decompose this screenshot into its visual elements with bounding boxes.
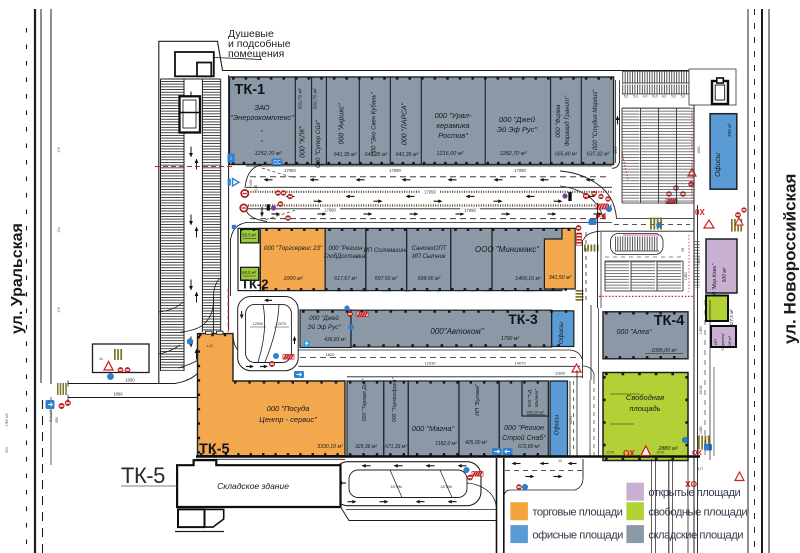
svg-text:11В30: 11В30 <box>555 372 565 376</box>
svg-text:5,0: 5,0 <box>624 95 629 99</box>
svg-text:складские площади: складские площади <box>648 529 743 541</box>
svg-text:12070: 12070 <box>276 322 287 326</box>
svg-text:672,80 м²: 672,80 м² <box>518 444 540 450</box>
svg-text:439,83 м²: 439,83 м² <box>324 337 346 343</box>
svg-text:ТК-4: ТК-4 <box>654 313 685 329</box>
svg-text:12П5М: 12П5М <box>390 485 402 489</box>
svg-text:5,1к,1Л: 5,1к,1Л <box>49 410 53 421</box>
svg-text:4,0: 4,0 <box>662 95 667 99</box>
svg-text:т0,0: т0,0 <box>651 95 657 99</box>
svg-text:Центр - сервис": Центр - сервис" <box>259 415 317 424</box>
svg-text:5,0: 5,0 <box>671 95 676 99</box>
svg-text:665,40 м²: 665,40 м² <box>555 152 577 158</box>
svg-text:1700 м²: 1700 м² <box>501 336 520 342</box>
svg-text:637,32 м²: 637,32 м² <box>587 152 610 158</box>
svg-text:000 "Магна": 000 "Магна" <box>412 424 455 433</box>
svg-text:000 "ЛАРСА": 000 "ЛАРСА" <box>402 102 409 145</box>
svg-text:500 м²: 500 м² <box>722 267 728 282</box>
svg-text:12030: 12030 <box>424 361 436 366</box>
svg-text:1Лк: 1Лк <box>57 227 61 233</box>
svg-text:12090: 12090 <box>253 322 264 326</box>
svg-text:25,5: 25,5 <box>614 147 618 154</box>
svg-text:000 "Урал-: 000 "Урал- <box>435 111 472 120</box>
svg-text:000 "Термосфера": 000 "Термосфера" <box>392 377 398 423</box>
svg-text:Эй Эф Рус": Эй Эф Рус" <box>307 324 341 331</box>
svg-text:ГлобДоставка": ГлобДоставка" <box>324 254 368 260</box>
svg-text:17б: 17б <box>57 147 61 153</box>
svg-text:341,50 м²: 341,50 м² <box>549 275 572 281</box>
svg-text:5,0: 5,0 <box>633 95 638 99</box>
svg-text:Милена": Милена" <box>534 389 539 408</box>
svg-text:000 "КЛК": 000 "КЛК" <box>300 126 307 158</box>
svg-text:ОХ: ОХ <box>623 448 635 458</box>
svg-text:СантехОПТ: СантехОПТ <box>412 246 448 252</box>
svg-text:5,0: 5,0 <box>681 95 686 99</box>
svg-text:000 "Посуда: 000 "Посуда <box>267 404 310 413</box>
svg-text:000 "Термал Дон": 000 "Термал Дон" <box>362 378 368 422</box>
svg-text:Ростов": Ростов" <box>438 131 468 140</box>
svg-text:329,36 м²: 329,36 м² <box>355 444 377 450</box>
svg-text:ИП Сытник: ИП Сытник <box>412 254 447 260</box>
svg-text:1820: 1820 <box>326 352 336 357</box>
svg-text:ТК-3: ТК-3 <box>508 311 538 327</box>
svg-text:17к5В: 17к5В <box>249 180 253 189</box>
svg-text:14П0: 14П0 <box>699 326 703 334</box>
svg-text:керамика: керамика <box>436 121 469 130</box>
svg-text:открытые площади: открытые площади <box>648 487 740 499</box>
svg-text:1216,00 м²: 1216,00 м² <box>436 151 463 157</box>
svg-text:14П0: 14П0 <box>684 272 688 280</box>
svg-text:15040: 15040 <box>699 385 703 395</box>
svg-text:ТК-1: ТК-1 <box>235 82 266 98</box>
svg-text:12П5М: 12П5М <box>440 485 452 489</box>
svg-text:Строй Снаб": Строй Снаб" <box>502 434 546 442</box>
svg-text:14070: 14070 <box>514 361 526 366</box>
svg-text:58,5 м²: 58,5 м² <box>242 233 257 238</box>
svg-text:000 "Студия Маркиз": 000 "Студия Маркиз" <box>593 89 599 150</box>
svg-text:690 м²: 690 м² <box>727 123 732 137</box>
svg-text:"Стрелец": "Стрелец" <box>721 332 725 351</box>
svg-text:200,00 м²: 200,00 м² <box>525 410 544 415</box>
svg-text:Офисы: Офисы <box>715 152 722 177</box>
svg-text:4,П: 4,П <box>697 467 703 471</box>
svg-text:17090: 17090 <box>324 208 336 213</box>
svg-text:641,35 м²: 641,35 м² <box>396 152 419 158</box>
svg-text:000 "Т.Д.: 000 "Т.Д. <box>527 389 532 408</box>
svg-text:17050: 17050 <box>284 168 296 173</box>
svg-text:ТК-5: ТК-5 <box>121 463 165 488</box>
svg-text:000 "Эко Свен Кубань": 000 "Эко Свен Кубань" <box>372 91 378 155</box>
svg-text:2к: 2к <box>99 357 103 361</box>
svg-text:17050: 17050 <box>424 190 436 195</box>
svg-text:1182,0 м²: 1182,0 м² <box>435 441 457 447</box>
svg-text:17090: 17090 <box>464 208 476 213</box>
svg-text:327,5 м²: 327,5 м² <box>729 309 734 327</box>
svg-text:ИП Соломахина: ИП Соломахина <box>364 248 410 254</box>
svg-text:4,0: 4,0 <box>643 95 648 99</box>
svg-text:100 м²: 100 м² <box>727 335 732 348</box>
svg-text:17090: 17090 <box>514 168 526 173</box>
svg-text:000"Автоком": 000"Автоком" <box>430 327 484 336</box>
svg-text:15б0: 15б0 <box>697 146 701 154</box>
svg-text:к,12: к,12 <box>207 344 213 348</box>
svg-text:5ЛУ: 5ЛУ <box>55 416 59 423</box>
svg-text:ЗАО: ЗАО <box>254 103 269 112</box>
svg-text:1469,10 м²: 1469,10 м² <box>515 276 541 282</box>
svg-text:671,33 м²: 671,33 м² <box>385 444 407 450</box>
svg-text:1890: 1890 <box>113 392 123 397</box>
svg-text:Складское здание: Складское здание <box>217 481 289 491</box>
svg-text:1095,00 м²: 1095,00 м² <box>651 348 677 354</box>
svg-text:1270: 1270 <box>606 451 614 455</box>
svg-text:1282,70 м²: 1282,70 м² <box>499 151 526 157</box>
svg-text:ИП: ИП <box>713 339 718 345</box>
svg-text:425,00 м²: 425,00 м² <box>465 440 487 446</box>
svg-text:13: 13 <box>558 459 562 463</box>
svg-text:торговые площади: торговые площади <box>532 507 622 519</box>
svg-text:свободные площади: свободные площади <box>648 507 747 519</box>
svg-text:000 "Акрикс": 000 "Акрикс" <box>339 103 346 145</box>
svg-text:000 "Регион: 000 "Регион <box>504 425 544 432</box>
svg-text:617,67 м²: 617,67 м² <box>334 276 357 282</box>
svg-text:12П5: 12П5 <box>569 416 573 424</box>
svg-text:ул. Уральская: ул. Уральская <box>9 223 26 334</box>
svg-text:Офисы: Офисы <box>555 414 561 435</box>
svg-text:5Лк: 5Лк <box>5 447 9 453</box>
svg-text:СС: СС <box>273 160 281 166</box>
svg-text:17б: 17б <box>57 307 61 313</box>
svg-text:Свободная: Свободная <box>626 393 664 402</box>
svg-text:300,70 м²: 300,70 м² <box>313 88 319 109</box>
svg-text:17В5 М3: 17В5 М3 <box>5 413 9 426</box>
svg-text:Форвард Гранит": Форвард Гранит" <box>564 95 571 146</box>
svg-text:ИП "Булава": ИП "Булава" <box>475 383 481 416</box>
svg-text:000 "Джей: 000 "Джей <box>309 315 339 322</box>
svg-text:0Х: 0Х <box>695 208 705 217</box>
svg-text:000 "Супер Ойл": 000 "Супер Ойл" <box>315 119 322 167</box>
svg-text:1252,70 м²: 1252,70 м² <box>254 151 281 157</box>
svg-text:ООО "Минимакс": ООО "Минимакс" <box>475 245 540 254</box>
svg-text:000 "Регион: 000 "Регион <box>328 246 363 252</box>
svg-text:Офисы: Офисы <box>558 322 565 344</box>
svg-text:17090: 17090 <box>389 168 401 173</box>
svg-text:599,00 м²: 599,00 м² <box>418 276 441 282</box>
svg-text:"Энергокомплекс": "Энергокомплекс" <box>230 113 294 122</box>
svg-text:5,1Л: 5,1Л <box>254 185 258 192</box>
svg-text:000 "Джей: 000 "Джей <box>499 115 536 124</box>
svg-text:000 "Алеа": 000 "Алеа" <box>617 329 652 336</box>
svg-text:1000 м²: 1000 м² <box>283 276 303 282</box>
svg-text:площадь: площадь <box>629 404 660 413</box>
svg-text:ОХ: ОХ <box>692 450 702 457</box>
svg-text:1070: 1070 <box>656 451 664 455</box>
svg-text:i: i <box>230 156 231 162</box>
svg-text:000 "Торгсервис 23": 000 "Торгсервис 23" <box>264 245 323 252</box>
svg-text:5Л: 5Л <box>681 248 685 252</box>
svg-text:597,50 м²: 597,50 м² <box>375 276 398 282</box>
svg-text:ул. Новороссийская: ул. Новороссийская <box>781 174 800 344</box>
svg-text:3330,10 м²: 3330,10 м² <box>317 444 343 450</box>
svg-text:14Л0: 14Л0 <box>699 426 703 434</box>
svg-text:1090: 1090 <box>125 378 135 383</box>
svg-text:641,35 м²: 641,35 м² <box>334 152 357 158</box>
svg-text:Эй Эф Рус": Эй Эф Рус" <box>497 125 538 134</box>
svg-text:300,70 м²: 300,70 м² <box>298 88 304 109</box>
svg-text:641,35 м²: 641,35 м² <box>365 152 388 158</box>
svg-text:офисные площади: офисные площади <box>532 529 623 541</box>
svg-text:58,5 м²: 58,5 м² <box>242 270 257 275</box>
svg-text:000 "Фирма: 000 "Фирма <box>555 104 562 138</box>
